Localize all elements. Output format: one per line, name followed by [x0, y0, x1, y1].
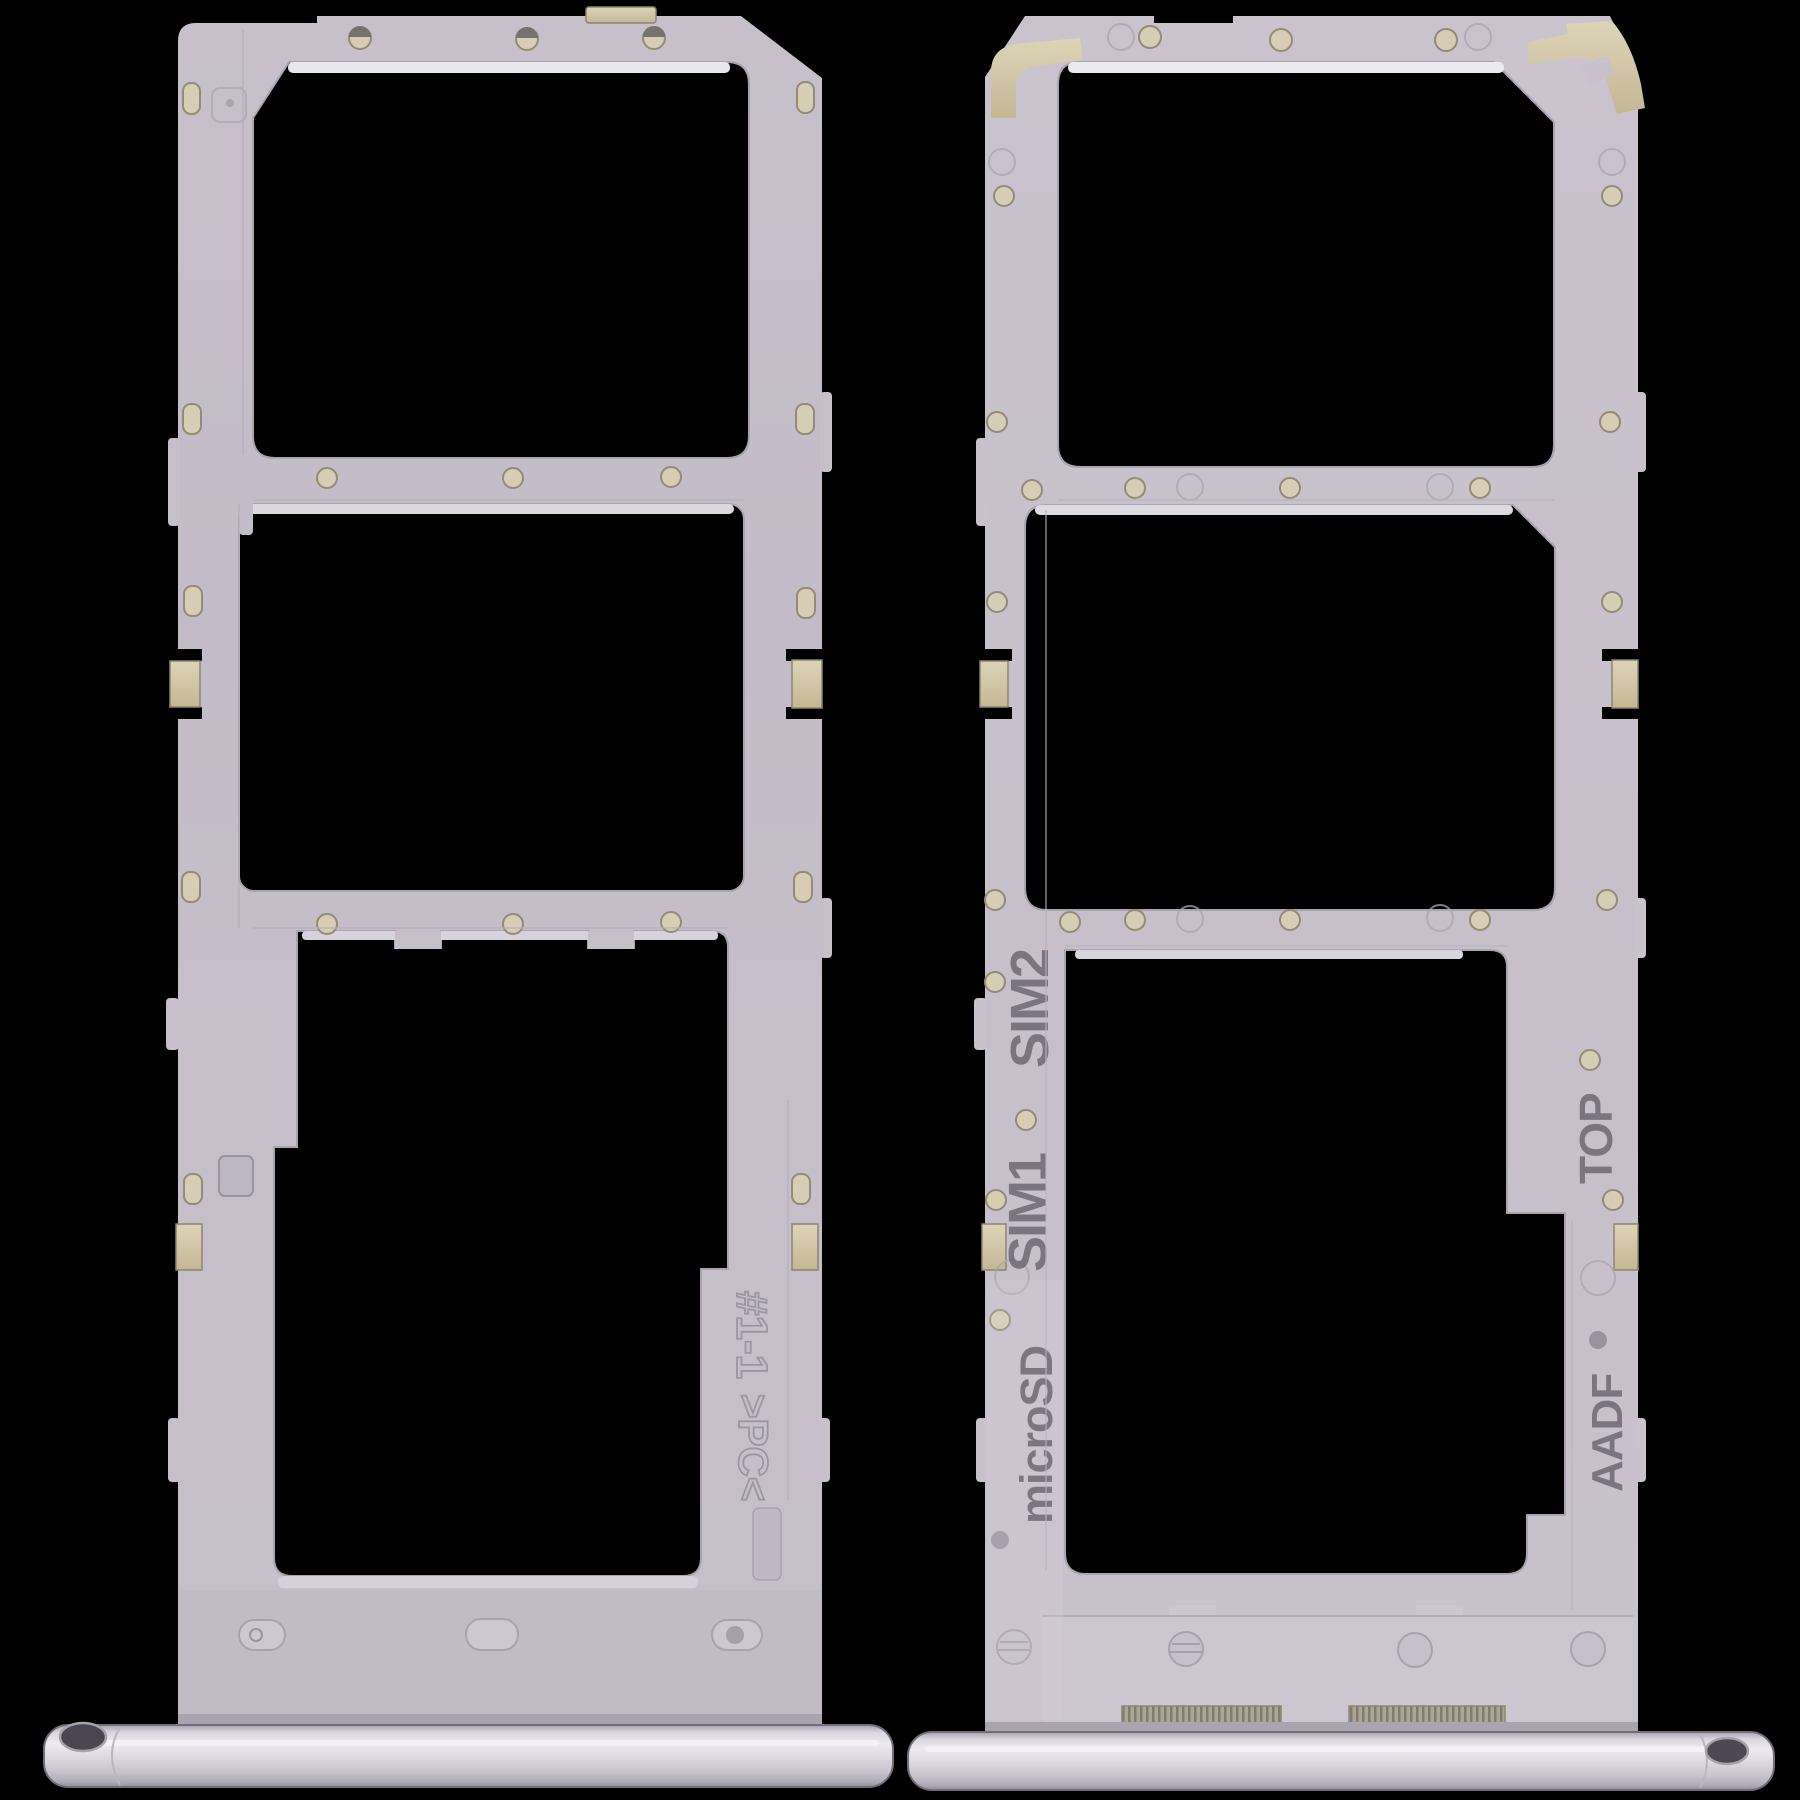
svg-text:>PC<: >PC<: [730, 1394, 777, 1501]
svg-text:AADF: AADF: [1583, 1374, 1632, 1492]
svg-text:SIM1: SIM1: [998, 1153, 1058, 1272]
svg-text:#1-1: #1-1: [727, 1291, 776, 1379]
svg-text:SIM2: SIM2: [1000, 950, 1060, 1068]
svg-text:TOP: TOP: [1570, 1093, 1622, 1184]
svg-text:microSD: microSD: [1011, 1346, 1062, 1524]
